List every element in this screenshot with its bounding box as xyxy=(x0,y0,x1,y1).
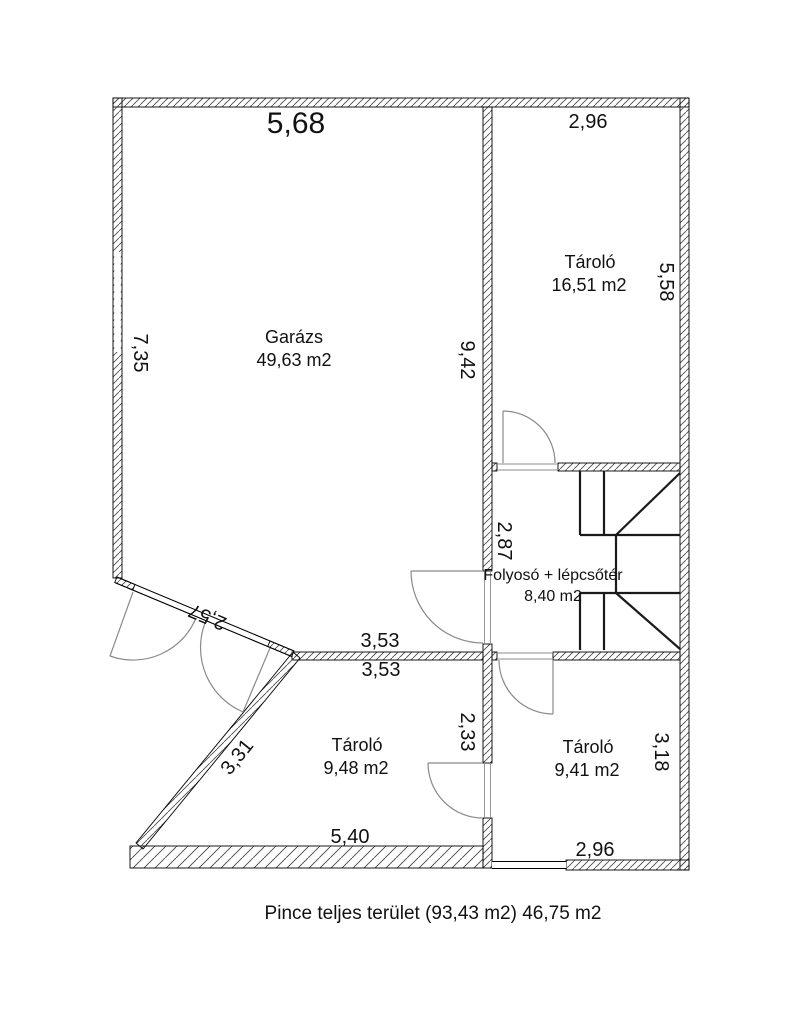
wall-middle-lower xyxy=(483,818,492,868)
dim-storage-bl-right: 2,33 xyxy=(456,713,478,752)
floor-plan-canvas: 5,68 2,96 3,53 3,53 5,40 2,96 7,35 9,42 … xyxy=(0,0,791,1024)
wall-storage-hall-left-stub xyxy=(492,463,497,471)
wall-storage-hall xyxy=(558,463,680,471)
dim-storage-bl-bottom: 5,40 xyxy=(331,826,370,848)
dim-garage-bottom: 3,53 xyxy=(361,630,400,652)
dim-storage-tr-top: 2,96 xyxy=(569,111,608,133)
bottom-right-thin-section xyxy=(492,861,566,869)
dim-hall-left: 2,87 xyxy=(493,522,515,561)
wall-hall-storage xyxy=(553,652,680,660)
room-hall-area: 8,40 m2 xyxy=(524,588,582,605)
room-storage-bl-area: 9,48 m2 xyxy=(323,758,388,778)
dim-garage-right: 9,42 xyxy=(456,341,478,380)
room-storage-bl-name: Tároló xyxy=(331,735,382,755)
dim-storage-br-bottom: 2,96 xyxy=(576,839,615,861)
room-garage-area: 49,63 m2 xyxy=(256,350,331,370)
dim-storage-br-right: 3,18 xyxy=(650,733,672,772)
room-storage-br-area: 9,41 m2 xyxy=(554,760,619,780)
room-storage-tr-name: Tároló xyxy=(564,252,615,272)
dim-garage-left: 7,35 xyxy=(129,334,151,373)
wall-right xyxy=(680,98,689,870)
wall-bottom-right xyxy=(566,860,689,870)
wall-top xyxy=(113,98,689,107)
floor-plan-page: 5,68 2,96 3,53 3,53 5,40 2,96 7,35 9,42 … xyxy=(0,0,791,1024)
room-storage-tr-area: 16,51 m2 xyxy=(551,275,626,295)
dim-garage-top: 5,68 xyxy=(267,107,325,140)
dim-storage-tr-right: 5,58 xyxy=(655,263,677,302)
dim-storage-bl-top: 3,53 xyxy=(362,659,401,681)
wall-middle-upper xyxy=(483,107,492,571)
room-storage-br-name: Tároló xyxy=(562,737,613,757)
room-hall-name: Folyosó + lépcsőtér xyxy=(483,567,623,584)
wall-hall-storage-left-stub xyxy=(492,652,497,660)
caption: Pince teljes terület (93,43 m2) 46,75 m2 xyxy=(265,903,602,924)
wall-middle-mid xyxy=(483,644,492,763)
left-wall-thin-section xyxy=(114,252,120,352)
room-garage-name: Garázs xyxy=(265,327,323,347)
wall-bottom-left-thick xyxy=(130,846,483,868)
